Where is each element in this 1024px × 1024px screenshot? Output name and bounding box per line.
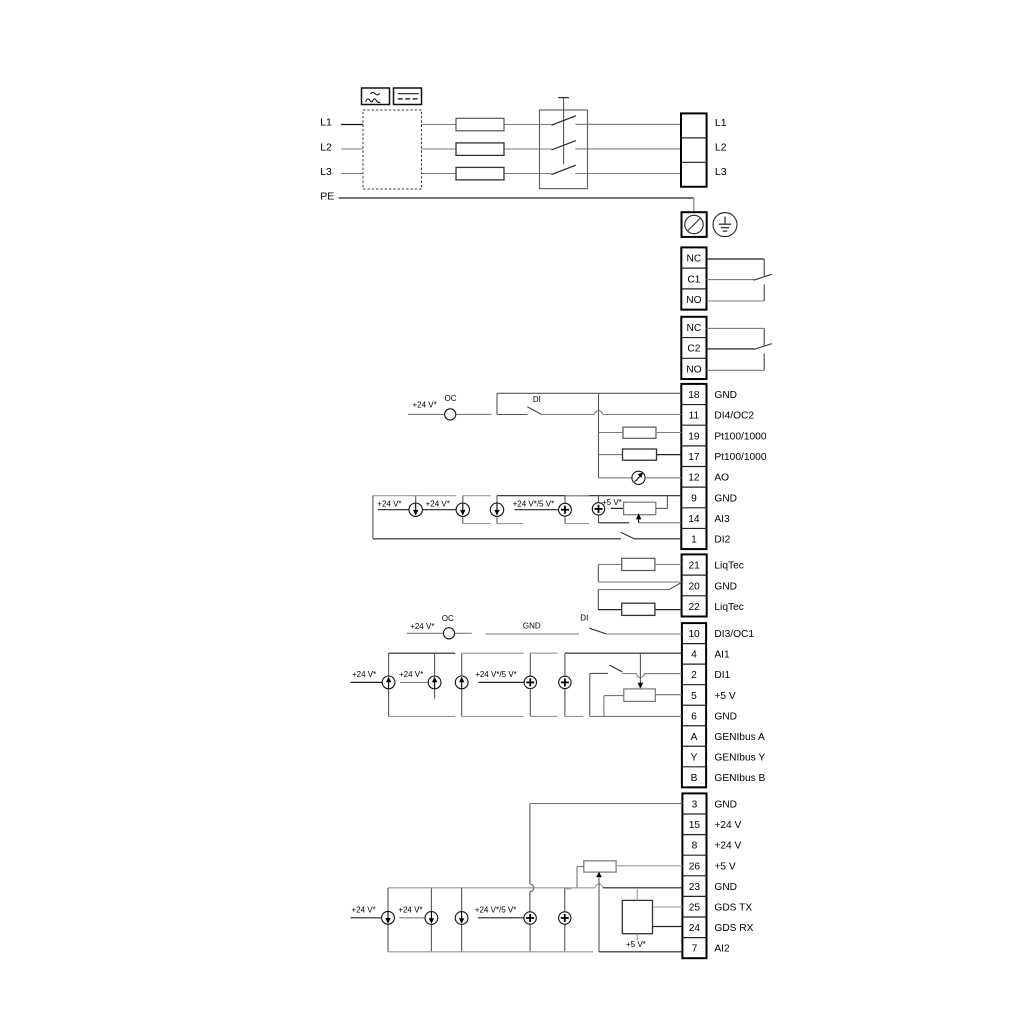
svg-text:GND: GND bbox=[714, 800, 737, 811]
svg-text:+24 V*: +24 V* bbox=[398, 906, 422, 915]
svg-text:C2: C2 bbox=[687, 344, 700, 355]
svg-text:AI3: AI3 bbox=[714, 514, 730, 525]
svg-text:GND: GND bbox=[714, 493, 737, 504]
svg-text:AI2: AI2 bbox=[714, 944, 730, 955]
svg-text:Pt100/1000: Pt100/1000 bbox=[714, 452, 766, 463]
svg-text:GND: GND bbox=[714, 882, 737, 893]
svg-text:25: 25 bbox=[689, 903, 701, 914]
svg-text:+24 V*: +24 V* bbox=[377, 500, 401, 509]
svg-text:7: 7 bbox=[692, 944, 698, 955]
svg-text:8: 8 bbox=[692, 841, 698, 852]
svg-text:+24 V*: +24 V* bbox=[399, 670, 423, 679]
svg-text:3: 3 bbox=[692, 800, 698, 811]
svg-text:+24 V*: +24 V* bbox=[352, 670, 376, 679]
svg-text:GND: GND bbox=[523, 621, 541, 630]
svg-text:L2: L2 bbox=[715, 142, 727, 154]
svg-text:LiqTec: LiqTec bbox=[714, 602, 743, 613]
svg-text:OC: OC bbox=[445, 394, 457, 403]
svg-text:14: 14 bbox=[688, 514, 700, 525]
svg-text:24: 24 bbox=[689, 923, 701, 934]
svg-text:4: 4 bbox=[691, 650, 697, 661]
svg-text:GND: GND bbox=[714, 711, 737, 722]
svg-text:B: B bbox=[691, 773, 698, 784]
svg-text:NC: NC bbox=[687, 323, 702, 334]
svg-text:+24 V*/5 V*: +24 V*/5 V* bbox=[513, 500, 555, 509]
svg-text:10: 10 bbox=[688, 629, 700, 640]
svg-text:AI1: AI1 bbox=[714, 650, 730, 661]
svg-text:6: 6 bbox=[691, 711, 697, 722]
svg-text:Pt100/1000: Pt100/1000 bbox=[714, 431, 766, 442]
svg-text:DI2: DI2 bbox=[714, 535, 730, 546]
svg-text:GND: GND bbox=[714, 581, 737, 592]
svg-text:DI: DI bbox=[580, 614, 588, 623]
svg-text:L1: L1 bbox=[320, 117, 332, 129]
svg-text:21: 21 bbox=[688, 561, 700, 572]
svg-text:+5 V*: +5 V* bbox=[626, 940, 646, 949]
svg-text:11: 11 bbox=[689, 411, 700, 422]
svg-text:+24 V*: +24 V* bbox=[413, 400, 437, 409]
svg-text:L3: L3 bbox=[320, 166, 332, 178]
svg-text:+5 V: +5 V bbox=[714, 861, 735, 872]
svg-text:NO: NO bbox=[686, 295, 701, 306]
svg-text:23: 23 bbox=[689, 882, 701, 893]
svg-text:+24 V*/5 V*: +24 V*/5 V* bbox=[475, 906, 517, 915]
svg-text:A: A bbox=[691, 732, 698, 743]
svg-text:GND: GND bbox=[714, 390, 737, 401]
svg-text:19: 19 bbox=[688, 431, 700, 442]
svg-text:22: 22 bbox=[688, 602, 700, 613]
svg-text:NC: NC bbox=[687, 254, 702, 265]
svg-text:OC: OC bbox=[442, 614, 454, 623]
svg-text:GENIbus B: GENIbus B bbox=[714, 773, 765, 784]
svg-text:+24 V*: +24 V* bbox=[426, 500, 450, 509]
svg-text:GENIbus A: GENIbus A bbox=[714, 732, 765, 743]
svg-text:DI3/OC1: DI3/OC1 bbox=[714, 629, 754, 640]
svg-text:5: 5 bbox=[691, 691, 697, 702]
svg-text:L1: L1 bbox=[715, 117, 727, 129]
svg-text:+5 V: +5 V bbox=[714, 691, 735, 702]
svg-text:DI1: DI1 bbox=[714, 670, 730, 681]
svg-text:20: 20 bbox=[688, 581, 700, 592]
svg-text:GDS RX: GDS RX bbox=[714, 923, 753, 934]
svg-text:GDS TX: GDS TX bbox=[714, 903, 752, 914]
svg-text:15: 15 bbox=[689, 820, 701, 831]
svg-text:+24 V*/5 V*: +24 V*/5 V* bbox=[475, 670, 517, 679]
svg-text:2: 2 bbox=[691, 670, 697, 681]
svg-text:+24 V*: +24 V* bbox=[352, 906, 376, 915]
svg-text:9: 9 bbox=[691, 493, 697, 504]
svg-text:GENIbus Y: GENIbus Y bbox=[714, 752, 765, 763]
svg-text:+24 V*: +24 V* bbox=[410, 622, 434, 631]
svg-text:PE: PE bbox=[320, 191, 334, 203]
svg-text:+24 V: +24 V bbox=[714, 820, 741, 831]
svg-text:18: 18 bbox=[688, 390, 700, 401]
svg-text:LiqTec: LiqTec bbox=[714, 561, 743, 572]
svg-text:+24 V: +24 V bbox=[714, 841, 741, 852]
svg-text:17: 17 bbox=[688, 452, 700, 463]
svg-text:+5 V*: +5 V* bbox=[602, 498, 622, 507]
svg-text:AO: AO bbox=[714, 473, 729, 484]
svg-text:26: 26 bbox=[689, 861, 701, 872]
svg-text:L3: L3 bbox=[715, 166, 727, 178]
svg-text:Y: Y bbox=[691, 752, 698, 763]
svg-text:12: 12 bbox=[688, 473, 700, 484]
svg-text:L2: L2 bbox=[320, 142, 332, 154]
svg-text:1: 1 bbox=[691, 535, 697, 546]
svg-text:DI4/OC2: DI4/OC2 bbox=[714, 411, 754, 422]
svg-text:C1: C1 bbox=[687, 274, 700, 285]
svg-text:DI: DI bbox=[533, 395, 541, 404]
svg-text:NO: NO bbox=[686, 364, 701, 375]
